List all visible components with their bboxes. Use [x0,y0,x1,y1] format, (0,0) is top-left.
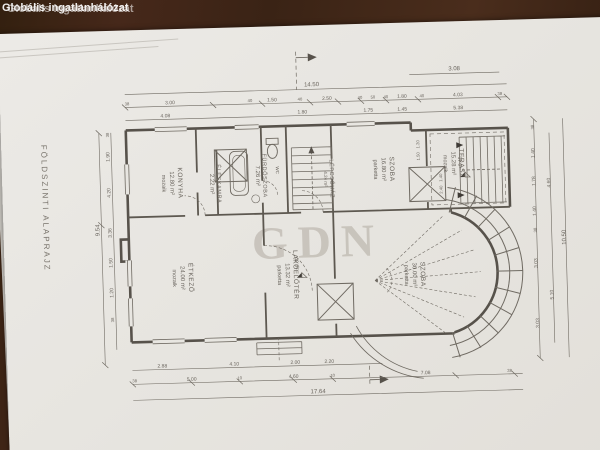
dim-label: 2.20 [324,359,334,365]
dim-label: 4.20 [106,188,112,198]
floorplan-paper: GDN [0,16,600,450]
dim-label: 4.60 [289,374,299,380]
room-area: 15.28 m² [449,151,456,175]
dim-label: 1.75 [363,108,373,114]
dim-label: 1.90 [105,152,111,162]
room-area: 2.22 m² [208,174,215,195]
dim-label: 1.50 [267,97,277,103]
dim-label: 5.10 [549,289,555,299]
dim-label: 10 [330,373,335,378]
room-floor: mozaik [442,155,448,173]
room-name: KONYHA [176,167,184,198]
room-name: WC [275,166,280,174]
dim-label: 38 [105,132,110,137]
room-label-wc: WC [275,166,280,174]
room-name: FÜRDŐSZOBA [260,153,268,197]
dim-label: 38 [530,124,535,129]
room-label-furdoszoba: 7.26 m² FÜRDŐSZOBA [253,153,268,198]
entrance-steps [257,338,303,361]
dim-label: 40 [419,93,424,98]
dim-label: 1.80 [297,109,307,115]
photo-of-floorplan: Globális ingatlanhálózat Globális ingatl… [0,0,600,450]
dim-label: 40 [248,98,253,103]
room-label-lepcsohaz: 4.24 m² LÉPCSŐHÁZ [323,159,336,198]
dim-label: 1.20 [415,140,420,149]
dim-label: 4.10 [229,361,239,367]
dim-label: 1.40 [530,148,536,158]
dim-label: 1.40 [532,206,538,216]
dim-label: 38 [132,378,137,383]
dim-labels-bottom: 2.88 4.10 2.00 2.20 38 5.00 10 4.60 10 7… [132,354,513,401]
toilet [266,138,279,158]
dim-label: 17.64 [311,389,327,395]
dim-label: 5.38 [453,105,463,111]
dim-label: 3.03 [535,318,541,328]
dim-label: 4.03 [453,92,463,98]
dim-labels-right: 38 1.40 1.78 1.40 38 3.03 3.03 4.60 5.10… [530,123,571,328]
dim-label: 10.50 [562,229,568,245]
dim-label: 9.54 [95,224,101,237]
dim-label: 38 [507,368,512,373]
dim-label: 3.36 [107,228,113,238]
room-label-etkezo: mozaik 24.00 m² ÉTKEZŐ [170,263,196,293]
section-arrow-bottom [369,365,389,386]
dim-label: 7.08 [421,370,431,376]
dim-label: 40 [358,95,363,100]
dim-label: 2.88 [157,363,167,369]
dim-label: 2.40 [438,185,443,194]
dim-label: 1.80 [397,94,407,100]
room-label-konyha: mozaik 12.80 m² KONYHA [160,167,184,199]
dim-label: 1.78 [531,176,537,186]
dim-label: 1.50 [415,152,420,161]
dim-label: 14.50 [304,82,320,88]
dim-label: 38 [497,91,502,96]
room-floor: parketta [403,265,410,286]
dim-label: 3.00 [165,100,175,106]
dim-label: 2.00 [290,360,300,366]
room-name: SZOBA [419,262,427,287]
dim-label: 10 [237,375,242,380]
room-floor: parketta [276,265,283,286]
room-area: 12.80 m² [168,171,175,195]
room-label-eleskamra: 2.22 m² ÉLÉSKAMRA [208,164,223,203]
dim-label: 1.40 [438,173,443,182]
watermark-gdn: GDN [251,214,385,269]
dim-label: 4.60 [546,177,552,187]
dim-label: 1.45 [397,107,407,113]
sheet-edge-lines [0,39,179,58]
room-area: 24.00 m² [179,266,186,290]
room-area: 4.24 m² [323,171,328,187]
room-area: 7.26 m² [254,166,261,187]
dim-label: 4.08 [160,113,170,119]
dim-label: 3.08 [448,66,461,72]
dim-label: 40 [383,94,388,99]
dim-label: 5.00 [187,377,197,383]
dim-label: 2.50 [322,96,332,102]
room-floor: mozaik [171,269,177,287]
room-area: 30.00 m² [411,263,418,287]
dim-label: 3.03 [533,258,539,268]
floorplan-drawing: GDN [0,16,600,450]
room-fan-pattern [373,215,482,336]
dim-label: 38 [110,317,115,322]
dim-label: 40 [298,97,303,102]
room-name: ÉTKEZŐ [186,263,196,293]
dim-label: 1.20 [109,288,115,298]
dim-label: 38 [125,101,130,106]
watermark-top-left: Globális ingatlanhálózat [2,2,129,14]
room-label-szoba-felso: parketta 16.80 m² SZOBA [372,156,396,182]
room-floor: parketta [372,160,379,181]
room-area: 13.32 m² [284,263,291,287]
room-label-szoba-also: parketta 30.00 m² SZOBA [403,262,427,288]
plan-side-title: FÖLDSZINTI ALAPRAJZ [39,145,52,272]
dim-label: 38 [533,227,538,232]
dim-labels-left: 38 1.90 4.20 3.36 1.50 1.20 38 9.54 [93,132,116,323]
room-name: LÉPCSŐHÁZ [328,159,336,198]
room-floor: mozaik [160,175,166,193]
dim-label: 1.50 [108,258,114,268]
dim-label: 50 [371,94,376,99]
room-name: TERASZ [457,148,465,177]
room-area: 16.80 m² [380,157,387,181]
room-name: SZOBA [388,156,396,181]
room-name: ÉLÉSKAMRA [215,164,223,203]
